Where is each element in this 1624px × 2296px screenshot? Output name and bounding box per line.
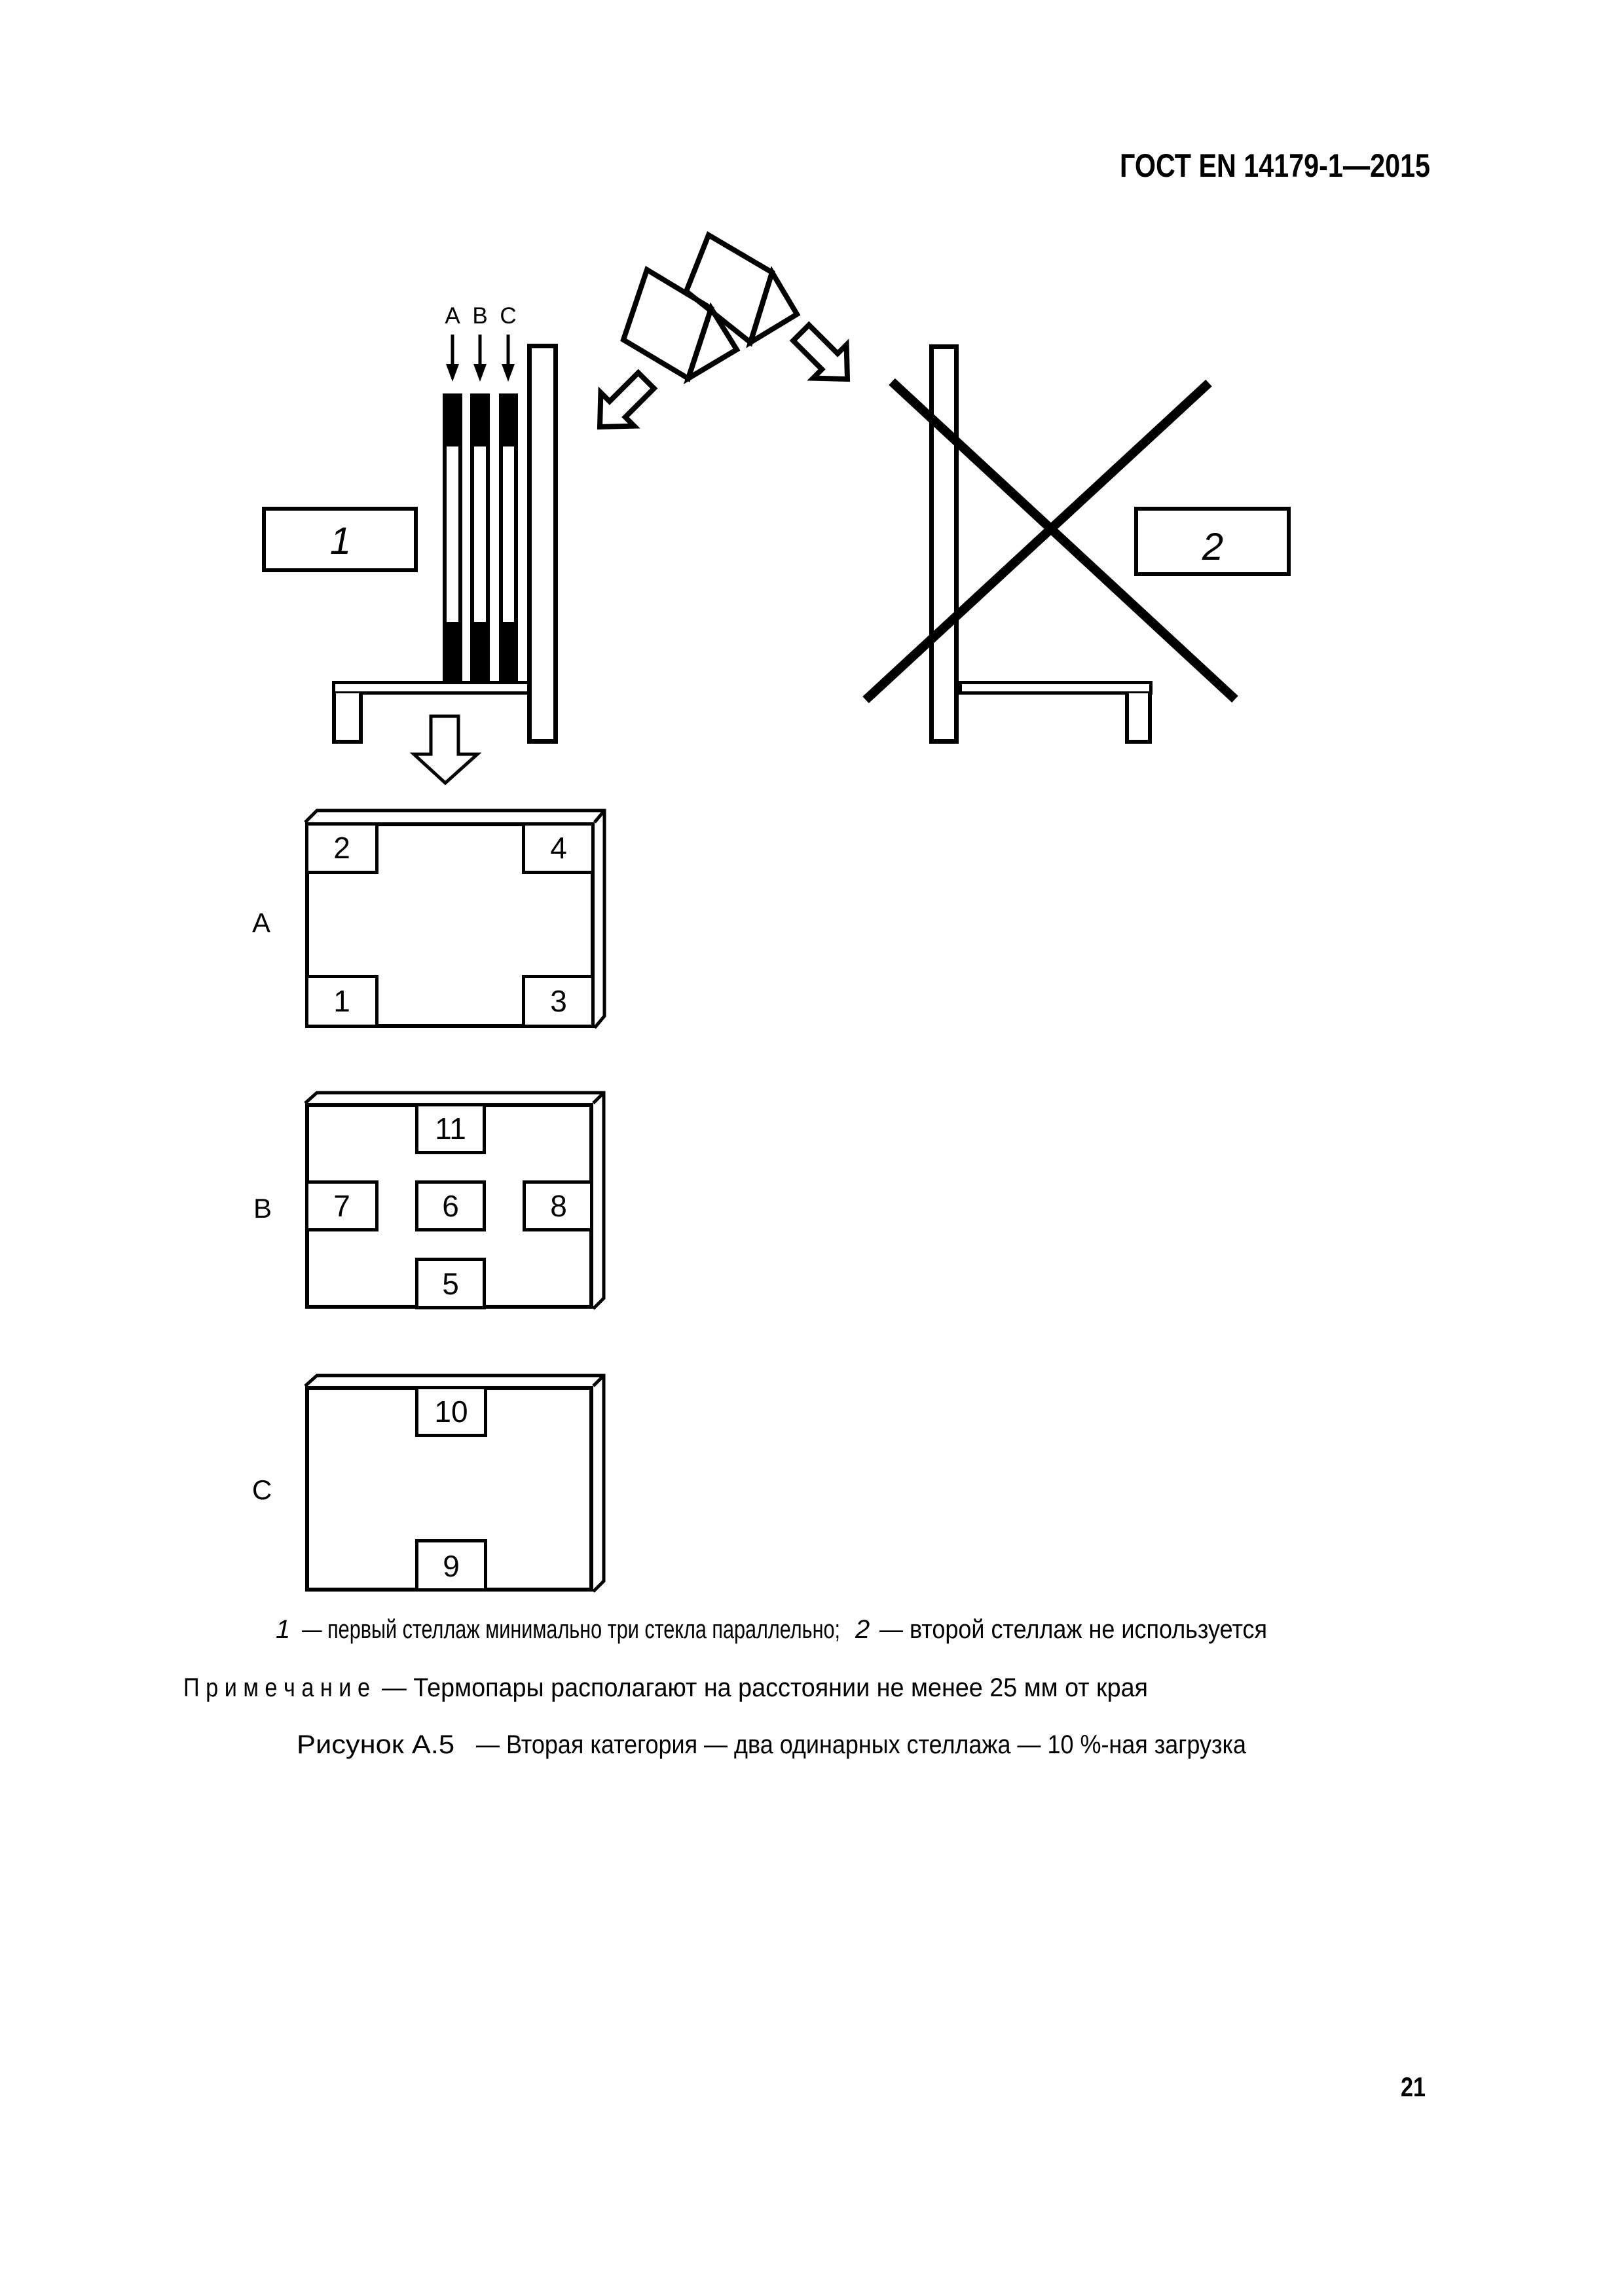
svg-text:— второй стеллаж не использует: — второй стеллаж не используется: [879, 1615, 1267, 1644]
svg-text:C: C: [500, 303, 516, 329]
svg-text:3: 3: [550, 984, 567, 1018]
svg-text:B: B: [253, 1193, 272, 1224]
svg-text:1: 1: [276, 1615, 290, 1644]
svg-text:— первый стеллаж минимально тр: — первый стеллаж минимально три стекла п…: [302, 1615, 840, 1644]
svg-text:6: 6: [442, 1189, 459, 1223]
svg-text:— Вторая категория — два одина: — Вторая категория — два одинарных стелл…: [476, 1730, 1247, 1759]
svg-text:4: 4: [550, 831, 567, 865]
svg-text:2: 2: [333, 831, 350, 865]
svg-text:B: B: [472, 303, 487, 329]
svg-text:9: 9: [443, 1549, 460, 1583]
svg-text:1: 1: [330, 520, 351, 562]
svg-text:C: C: [252, 1474, 272, 1505]
svg-text:П р и м е ч а н и е: П р и м е ч а н и е: [183, 1673, 370, 1702]
svg-text:— Термопары располагают на рас: — Термопары располагают на расстоянии не…: [382, 1673, 1148, 1702]
svg-text:1: 1: [333, 984, 350, 1018]
svg-text:8: 8: [550, 1189, 567, 1223]
svg-text:7: 7: [333, 1189, 350, 1223]
svg-text:A: A: [445, 303, 460, 329]
svg-text:2: 2: [1202, 526, 1223, 568]
svg-text:2: 2: [855, 1615, 870, 1644]
svg-text:21: 21: [1401, 2071, 1426, 2102]
svg-text:ГОСТ EN 14179-1—2015: ГОСТ EN 14179-1—2015: [1120, 147, 1430, 184]
svg-text:5: 5: [442, 1267, 459, 1301]
svg-text:A: A: [252, 907, 270, 938]
svg-text:10: 10: [434, 1394, 468, 1429]
svg-text:11: 11: [435, 1112, 466, 1146]
svg-text:Рисунок А.5: Рисунок А.5: [297, 1730, 454, 1759]
